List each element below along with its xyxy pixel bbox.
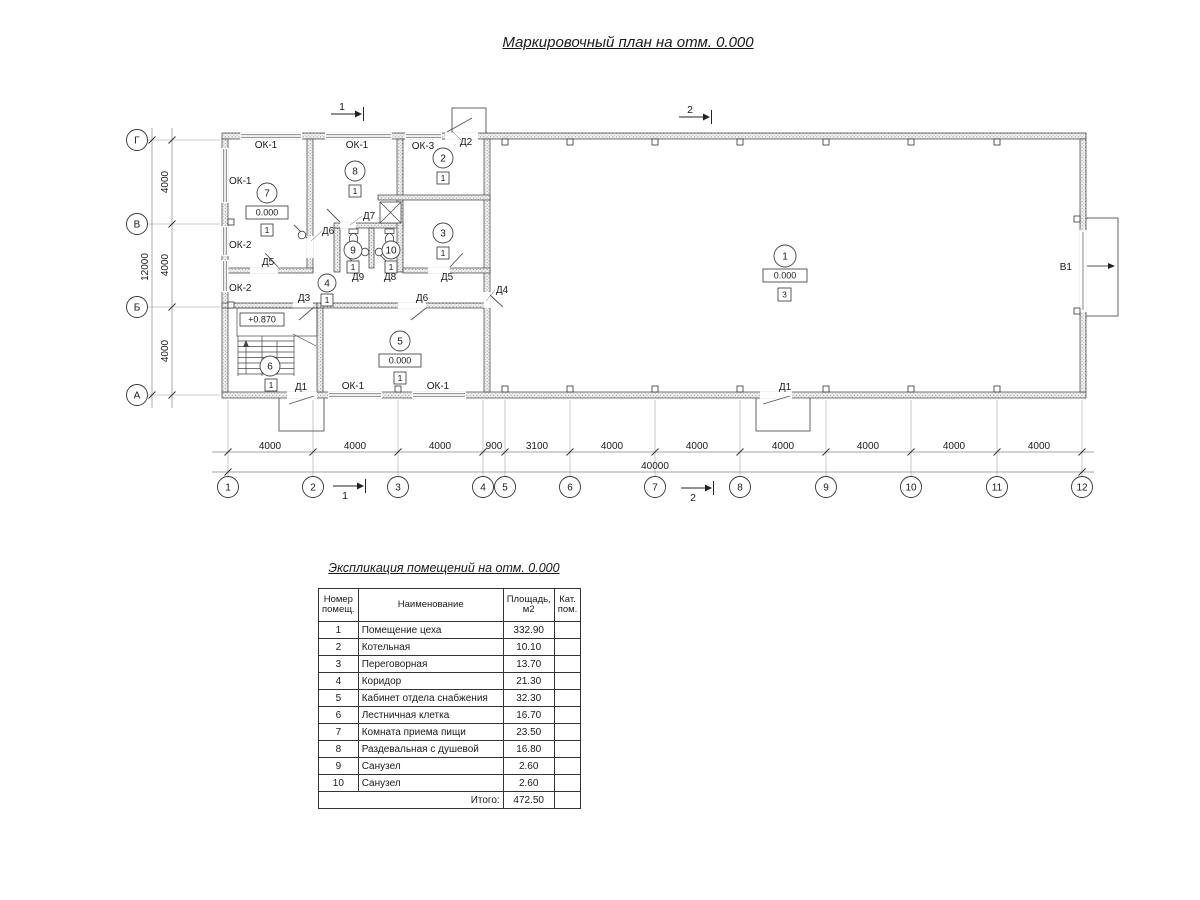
table-row: 10Санузел2.60 [319, 775, 581, 792]
dim-value: 4000 [601, 441, 624, 452]
col-header-number: Номерпомещ. [319, 589, 359, 622]
axis-bubble: 2 [303, 477, 324, 498]
door-label: Д5 [262, 257, 275, 268]
svg-text:8: 8 [737, 483, 743, 494]
svg-text:9: 9 [823, 483, 829, 494]
svg-text:0.000: 0.000 [774, 271, 797, 281]
door-label: Д6 [322, 226, 335, 237]
svg-text:5: 5 [397, 337, 403, 348]
axis-bubble: 11 [987, 477, 1008, 498]
total-value: 472.50 [503, 792, 554, 809]
svg-text:9: 9 [350, 246, 356, 257]
axis-bubble: Б [127, 297, 148, 318]
svg-text:1: 1 [353, 186, 358, 196]
room-marker-7: 7 0.000 1 [246, 183, 288, 236]
svg-text:0.000: 0.000 [389, 356, 412, 366]
svg-text:2: 2 [687, 104, 693, 116]
axis-bubble: 3 [388, 477, 409, 498]
axis-grid-lines [148, 140, 1082, 477]
section-marks: 1 2 1 2 [331, 101, 714, 504]
table-total-row: Итого: 472.50 [319, 792, 581, 809]
entry-porch [279, 398, 324, 431]
axis-bubble: 8 [730, 477, 751, 498]
dimension-lines: 4000 4000 4000 900 3100 4000 4000 4000 4… [140, 128, 1094, 476]
section-mark-1-top: 1 [331, 101, 364, 121]
room-marker-5: 5 0.000 1 [379, 331, 421, 384]
table-row: 4Коридор21.30 [319, 673, 581, 690]
svg-text:6: 6 [567, 483, 573, 494]
total-category [554, 792, 581, 809]
schedule-title: Экспликация помещений на отм. 0.000 [318, 561, 570, 575]
section-mark-1-bottom: 1 [333, 479, 366, 502]
table-row: 6Лестничная клетка16.70 [319, 707, 581, 724]
door-openings [250, 118, 1086, 404]
sink [298, 231, 306, 239]
dim-value: 4000 [429, 441, 452, 452]
section-mark-2-top: 2 [679, 104, 712, 124]
dim-value: 4000 [1028, 441, 1051, 452]
axis-bubble: В [127, 214, 148, 235]
window-label: ОК-1 [427, 381, 450, 392]
axis-bubble: А [127, 385, 148, 406]
dim-value: 4000 [259, 441, 282, 452]
door-label: Д5 [441, 272, 454, 283]
svg-text:1: 1 [782, 252, 788, 263]
svg-text:1: 1 [441, 173, 446, 183]
room-marker-10: 10 1 [382, 241, 400, 273]
svg-text:10: 10 [385, 246, 397, 257]
table-row: 3Переговорная13.70 [319, 656, 581, 673]
svg-text:8: 8 [352, 167, 358, 178]
gate-label: В1 [1060, 262, 1073, 273]
dim-value: 4000 [772, 441, 795, 452]
room-marker-3: 3 1 [433, 223, 453, 259]
table-row: 7Комната приема пищи23.50 [319, 724, 581, 741]
window-label: ОК-1 [346, 140, 369, 151]
room-marker-8: 8 1 [345, 161, 365, 197]
svg-text:1: 1 [389, 262, 394, 272]
svg-text:7: 7 [652, 483, 658, 494]
room-marker-9: 9 1 [344, 241, 362, 273]
dim-value: 4000 [857, 441, 880, 452]
table-row: 2Котельная10.10 [319, 639, 581, 656]
window-label: ОК-1 [229, 176, 252, 187]
svg-text:+0.870: +0.870 [248, 315, 276, 325]
table-row: 5Кабинет отдела снабжения32.30 [319, 690, 581, 707]
axis-bubble: 9 [816, 477, 837, 498]
room-marker-2: 2 1 [433, 148, 453, 184]
svg-text:Г: Г [134, 136, 140, 147]
dim-value: 3100 [526, 441, 549, 452]
door-label: Д4 [496, 285, 509, 296]
room-marker-6: 6 1 [260, 356, 280, 391]
svg-text:2: 2 [440, 154, 446, 165]
svg-text:1: 1 [441, 248, 446, 258]
dim-value: 4000 [160, 339, 171, 362]
svg-text:Б: Б [134, 303, 141, 314]
window-label: ОК-2 [229, 240, 252, 251]
table-header-row: Номерпомещ. Наименование Площадь,м2 Кат.… [319, 589, 581, 622]
svg-text:1: 1 [225, 483, 231, 494]
gate-platform [1086, 218, 1118, 316]
svg-text:1: 1 [339, 101, 345, 113]
entry-porch [452, 108, 486, 136]
svg-text:4: 4 [480, 483, 486, 494]
axis-bubble: 10 [901, 477, 922, 498]
svg-text:3: 3 [440, 229, 446, 240]
svg-text:2: 2 [310, 483, 316, 494]
room-marker-1: 1 0.000 3 [763, 245, 807, 301]
door-label: Д9 [352, 272, 365, 283]
svg-text:6: 6 [267, 362, 273, 373]
axis-bubble: 4 [473, 477, 494, 498]
svg-text:1: 1 [269, 380, 274, 390]
svg-text:12: 12 [1076, 483, 1088, 494]
table-row: 8Раздевальная с душевой16.80 [319, 741, 581, 758]
axis-bubble: 5 [495, 477, 516, 498]
table-row: 1Помещение цеха332.90 [319, 622, 581, 639]
axis-bubble: 6 [560, 477, 581, 498]
svg-text:5: 5 [502, 483, 508, 494]
dim-value: 900 [486, 441, 503, 452]
svg-text:В: В [134, 220, 141, 231]
window-label: ОК-3 [412, 141, 435, 152]
door-leaves [265, 118, 790, 404]
drawing-sheet: Маркировочный план на отм. 0.000 [0, 0, 1200, 900]
door-label: Д6 [416, 293, 429, 304]
gate-direction-arrow [1108, 263, 1115, 269]
vent-shaft [380, 202, 401, 223]
dim-value: 4000 [686, 441, 709, 452]
svg-text:А: А [134, 391, 141, 402]
svg-text:3: 3 [395, 483, 401, 494]
window-openings [222, 133, 466, 399]
door-label: Д8 [384, 272, 397, 283]
dim-value: 4000 [344, 441, 367, 452]
floor-plan: 4000 4000 4000 900 3100 4000 4000 4000 4… [0, 0, 1200, 560]
table-row: 9Санузел2.60 [319, 758, 581, 775]
entry-porch [756, 398, 810, 431]
svg-text:1: 1 [398, 373, 403, 383]
svg-text:11: 11 [992, 483, 1003, 494]
room-markers: 1 0.000 3 2 1 3 1 4 1 5 0.000 1 6 1 7 0.… [246, 148, 807, 391]
col-header-area: Площадь,м2 [503, 589, 554, 622]
room-marker-4: 4 1 [318, 274, 336, 306]
gate-mark: В1 [1060, 262, 1115, 273]
window-label: ОК-1 [342, 381, 365, 392]
door-labels: Д2 Д6 Д7 Д9 Д8 Д5 Д5 Д4 Д3 Д6 Д1 Д1 [262, 137, 792, 393]
section-mark-2-bottom: 2 [681, 481, 714, 504]
dim-value: 4000 [943, 441, 966, 452]
axis-bubble: 1 [218, 477, 239, 498]
axis-bubble: 12 [1072, 477, 1093, 498]
axis-bubble: Г [127, 130, 148, 151]
col-header-name: Наименование [358, 589, 503, 622]
door-label: Д1 [295, 382, 308, 393]
dim-value: 4000 [160, 170, 171, 193]
svg-text:1: 1 [265, 225, 270, 235]
landing-level-mark: +0.870 [240, 313, 284, 326]
svg-text:2: 2 [690, 492, 696, 504]
svg-text:10: 10 [905, 483, 917, 494]
svg-text:1: 1 [325, 295, 330, 305]
window-label: ОК-2 [229, 283, 252, 294]
door-label: Д2 [460, 137, 473, 148]
dim-total-width: 40000 [641, 461, 669, 472]
svg-text:1: 1 [351, 262, 356, 272]
window-label: ОК-1 [255, 140, 278, 151]
svg-text:3: 3 [782, 290, 787, 300]
total-label: Итого: [319, 792, 504, 809]
svg-text:1: 1 [342, 490, 348, 502]
svg-text:7: 7 [264, 189, 270, 200]
svg-text:0.000: 0.000 [256, 208, 279, 218]
dim-total-height: 12000 [140, 253, 151, 281]
door-label: Д1 [779, 382, 792, 393]
door-label: Д7 [363, 211, 376, 222]
axis-bubble: 7 [645, 477, 666, 498]
svg-text:4: 4 [324, 279, 330, 290]
dim-value: 4000 [160, 253, 171, 276]
col-header-category: Кат.пом. [554, 589, 581, 622]
door-label: Д3 [298, 293, 311, 304]
room-schedule-table: Номерпомещ. Наименование Площадь,м2 Кат.… [318, 588, 581, 809]
